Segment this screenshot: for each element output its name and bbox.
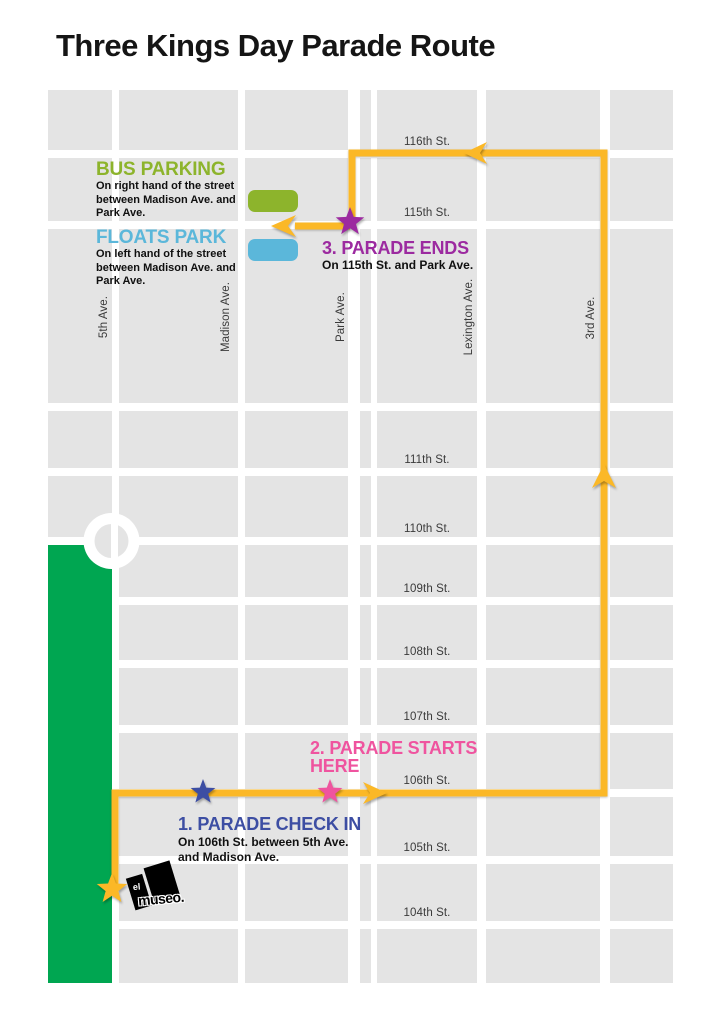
floats-park-desc-line2: between Madison Ave. and xyxy=(96,262,236,276)
star-parade-check-in xyxy=(191,779,216,803)
logo-text-museo: museo. xyxy=(137,889,184,909)
floats-park-description: On left hand of the street between Madis… xyxy=(96,248,236,289)
parade-route-map: Three Kings Day Parade Route 116th St. 1… xyxy=(0,0,724,1024)
parade-starts-line1: 2. PARADE STARTS xyxy=(310,739,477,757)
parade-check-in-line2: and Madison Ave. xyxy=(178,850,348,865)
floats-park-title: FLOATS PARK xyxy=(96,227,226,249)
star-parade-starts xyxy=(318,779,343,803)
parade-starts-title: 2. PARADE STARTS HERE xyxy=(310,739,477,775)
bus-parking-title: BUS PARKING xyxy=(96,159,225,181)
parade-starts-line2: HERE xyxy=(310,757,477,775)
star-parade-ends xyxy=(336,207,365,234)
parade-ends-subtitle: On 115th St. and Park Ave. xyxy=(322,258,473,273)
parade-ends-title: 3. PARADE ENDS xyxy=(322,239,469,257)
bus-parking-zone-marker xyxy=(248,190,298,212)
floats-park-zone-marker xyxy=(248,239,298,261)
bus-parking-desc-line3: Park Ave. xyxy=(96,207,236,221)
parade-check-in-title: 1. PARADE CHECK IN xyxy=(178,815,361,833)
parade-check-in-line1: On 106th St. between 5th Ave. xyxy=(178,835,348,850)
route-stars xyxy=(97,207,364,902)
arrow-west-115th xyxy=(271,215,296,237)
bus-parking-description: On right hand of the street between Madi… xyxy=(96,180,236,221)
traffic-circle xyxy=(84,513,140,569)
bus-parking-desc-line2: between Madison Ave. and xyxy=(96,194,236,208)
parade-check-in-description: On 106th St. between 5th Ave. and Madiso… xyxy=(178,835,348,865)
bus-parking-desc-line1: On right hand of the street xyxy=(96,180,236,194)
route-overlay xyxy=(0,0,724,1024)
traffic-circle-road xyxy=(111,522,118,560)
el-museo-logo: el museo. xyxy=(122,858,192,918)
floats-park-desc-line3: Park Ave. xyxy=(96,275,236,289)
logo-text-el: el xyxy=(132,881,140,892)
floats-park-desc-line1: On left hand of the street xyxy=(96,248,236,262)
